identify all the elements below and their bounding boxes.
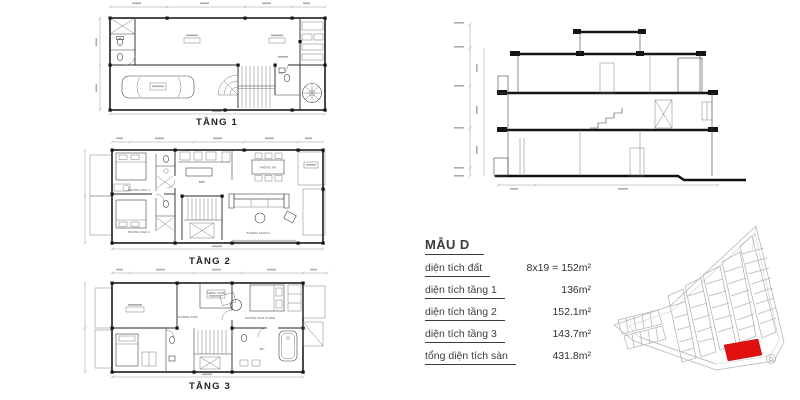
car-symbol (122, 76, 194, 98)
section-slab-ends (497, 29, 718, 132)
bed-symbol-1 (116, 153, 146, 180)
floor-plan-1-drawing (92, 0, 342, 116)
plan1-wc (279, 68, 290, 82)
plan2-bath-fixtures (157, 156, 173, 230)
section-slabs (500, 32, 718, 130)
plan2-balconies (90, 152, 325, 235)
bathtub-symbol (240, 331, 297, 366)
info-row-label: tổng diện tích sàn (425, 350, 516, 365)
plan1-bath-fixtures (110, 18, 135, 60)
plan3-bath-small (169, 337, 175, 361)
info-row-label: diện tích đất (425, 262, 490, 277)
info-row: diện tích tầng 1 136m² (425, 284, 591, 299)
info-row-value: 431.8m² (552, 350, 591, 362)
model-title: MẪU D (425, 237, 484, 255)
sofa-symbol (229, 194, 296, 223)
section-level-dimensions (454, 22, 484, 178)
drawing-sheet: TẦNG 1 (0, 0, 800, 400)
info-row-label: diện tích tầng 1 (425, 284, 505, 299)
master-bed-symbol (250, 285, 301, 311)
plan1-columns (109, 17, 327, 112)
info-panel: MẪU D diện tích đất 8x19 = 152m² diện tí… (425, 236, 591, 372)
floor-2-label: TẦNG 2 (82, 256, 338, 267)
plan2-room-labels: PHÒNG NGỦ 1 PHÒNG NGỦ 2 BẾP PHÒNG ĂN PHÒ… (128, 165, 276, 236)
info-row-value: 136m² (561, 284, 591, 296)
plan1-room-tags (184, 35, 288, 58)
svg-text:GIẾNG TRỜI: GIẾNG TRỜI (207, 290, 226, 295)
section-ground (495, 176, 746, 180)
info-row-value: 152.1m² (552, 306, 591, 318)
curved-stair-symbol (218, 75, 238, 95)
plan3-terrace (95, 283, 177, 368)
plan3-right-balconies (303, 286, 325, 346)
selected-lot-highlight (724, 339, 762, 361)
stairs-symbol (238, 66, 275, 108)
floor-plan-3-drawing: GIẾNG TRỜI (82, 268, 338, 380)
plan1-walls (110, 18, 325, 110)
plan3-walls (112, 283, 303, 372)
svg-text:BẾP: BẾP (199, 179, 205, 184)
svg-text:PHÒNG NGỦ 2: PHÒNG NGỦ 2 (128, 229, 150, 234)
svg-text:PHÒNG KHÁCH: PHÒNG KHÁCH (246, 230, 269, 235)
info-row: diện tích đất 8x19 = 152m² (425, 262, 591, 277)
info-row: diện tích tầng 2 152.1m² (425, 306, 591, 321)
spiral-stair-symbol (303, 84, 322, 103)
bed-symbol-3 (116, 334, 156, 366)
svg-text:PHÒNG NGỦ CHÍNH: PHÒNG NGỦ CHÍNH (245, 315, 275, 320)
plan1-kitchen-strip (302, 22, 323, 60)
info-row-value: 143.7m² (552, 328, 591, 340)
info-row-label: diện tích tầng 3 (425, 328, 505, 343)
section-bottom-dimension (497, 184, 720, 190)
svg-text:WC: WC (259, 347, 265, 351)
info-row-label: diện tích tầng 2 (425, 306, 505, 321)
info-row: diện tích tầng 3 143.7m² (425, 328, 591, 343)
floor-3-label: TẦNG 3 (82, 381, 338, 392)
plan3-room-labels: PHÒNG THỜ PHÒNG NGỦ CHÍNH WC (178, 314, 275, 351)
stairs-symbol (184, 198, 222, 238)
floor-1-label: TẦNG 1 (92, 117, 342, 128)
section-drawing (450, 8, 750, 208)
svg-text:PHÒNG THỜ: PHÒNG THỜ (178, 314, 198, 319)
bed-symbol-2 (116, 200, 146, 228)
stairs-symbol (194, 330, 232, 369)
plan3-dimensions (84, 269, 329, 379)
info-row-value: 8x19 = 152m² (527, 262, 592, 274)
site-map (606, 220, 800, 400)
roundabout-circle (767, 355, 776, 364)
svg-text:PHÒNG NGỦ 1: PHÒNG NGỦ 1 (128, 187, 150, 192)
info-row: tổng diện tích sàn 431.8m² (425, 350, 591, 365)
section-interior (494, 54, 712, 176)
floor-plan-2-drawing: PHÒNG NGỦ 1 PHÒNG NGỦ 2 BẾP PHÒNG ĂN PHÒ… (82, 136, 338, 254)
svg-text:PHÒNG ĂN: PHÒNG ĂN (260, 165, 277, 170)
kitchen-counter-symbol (178, 152, 230, 176)
